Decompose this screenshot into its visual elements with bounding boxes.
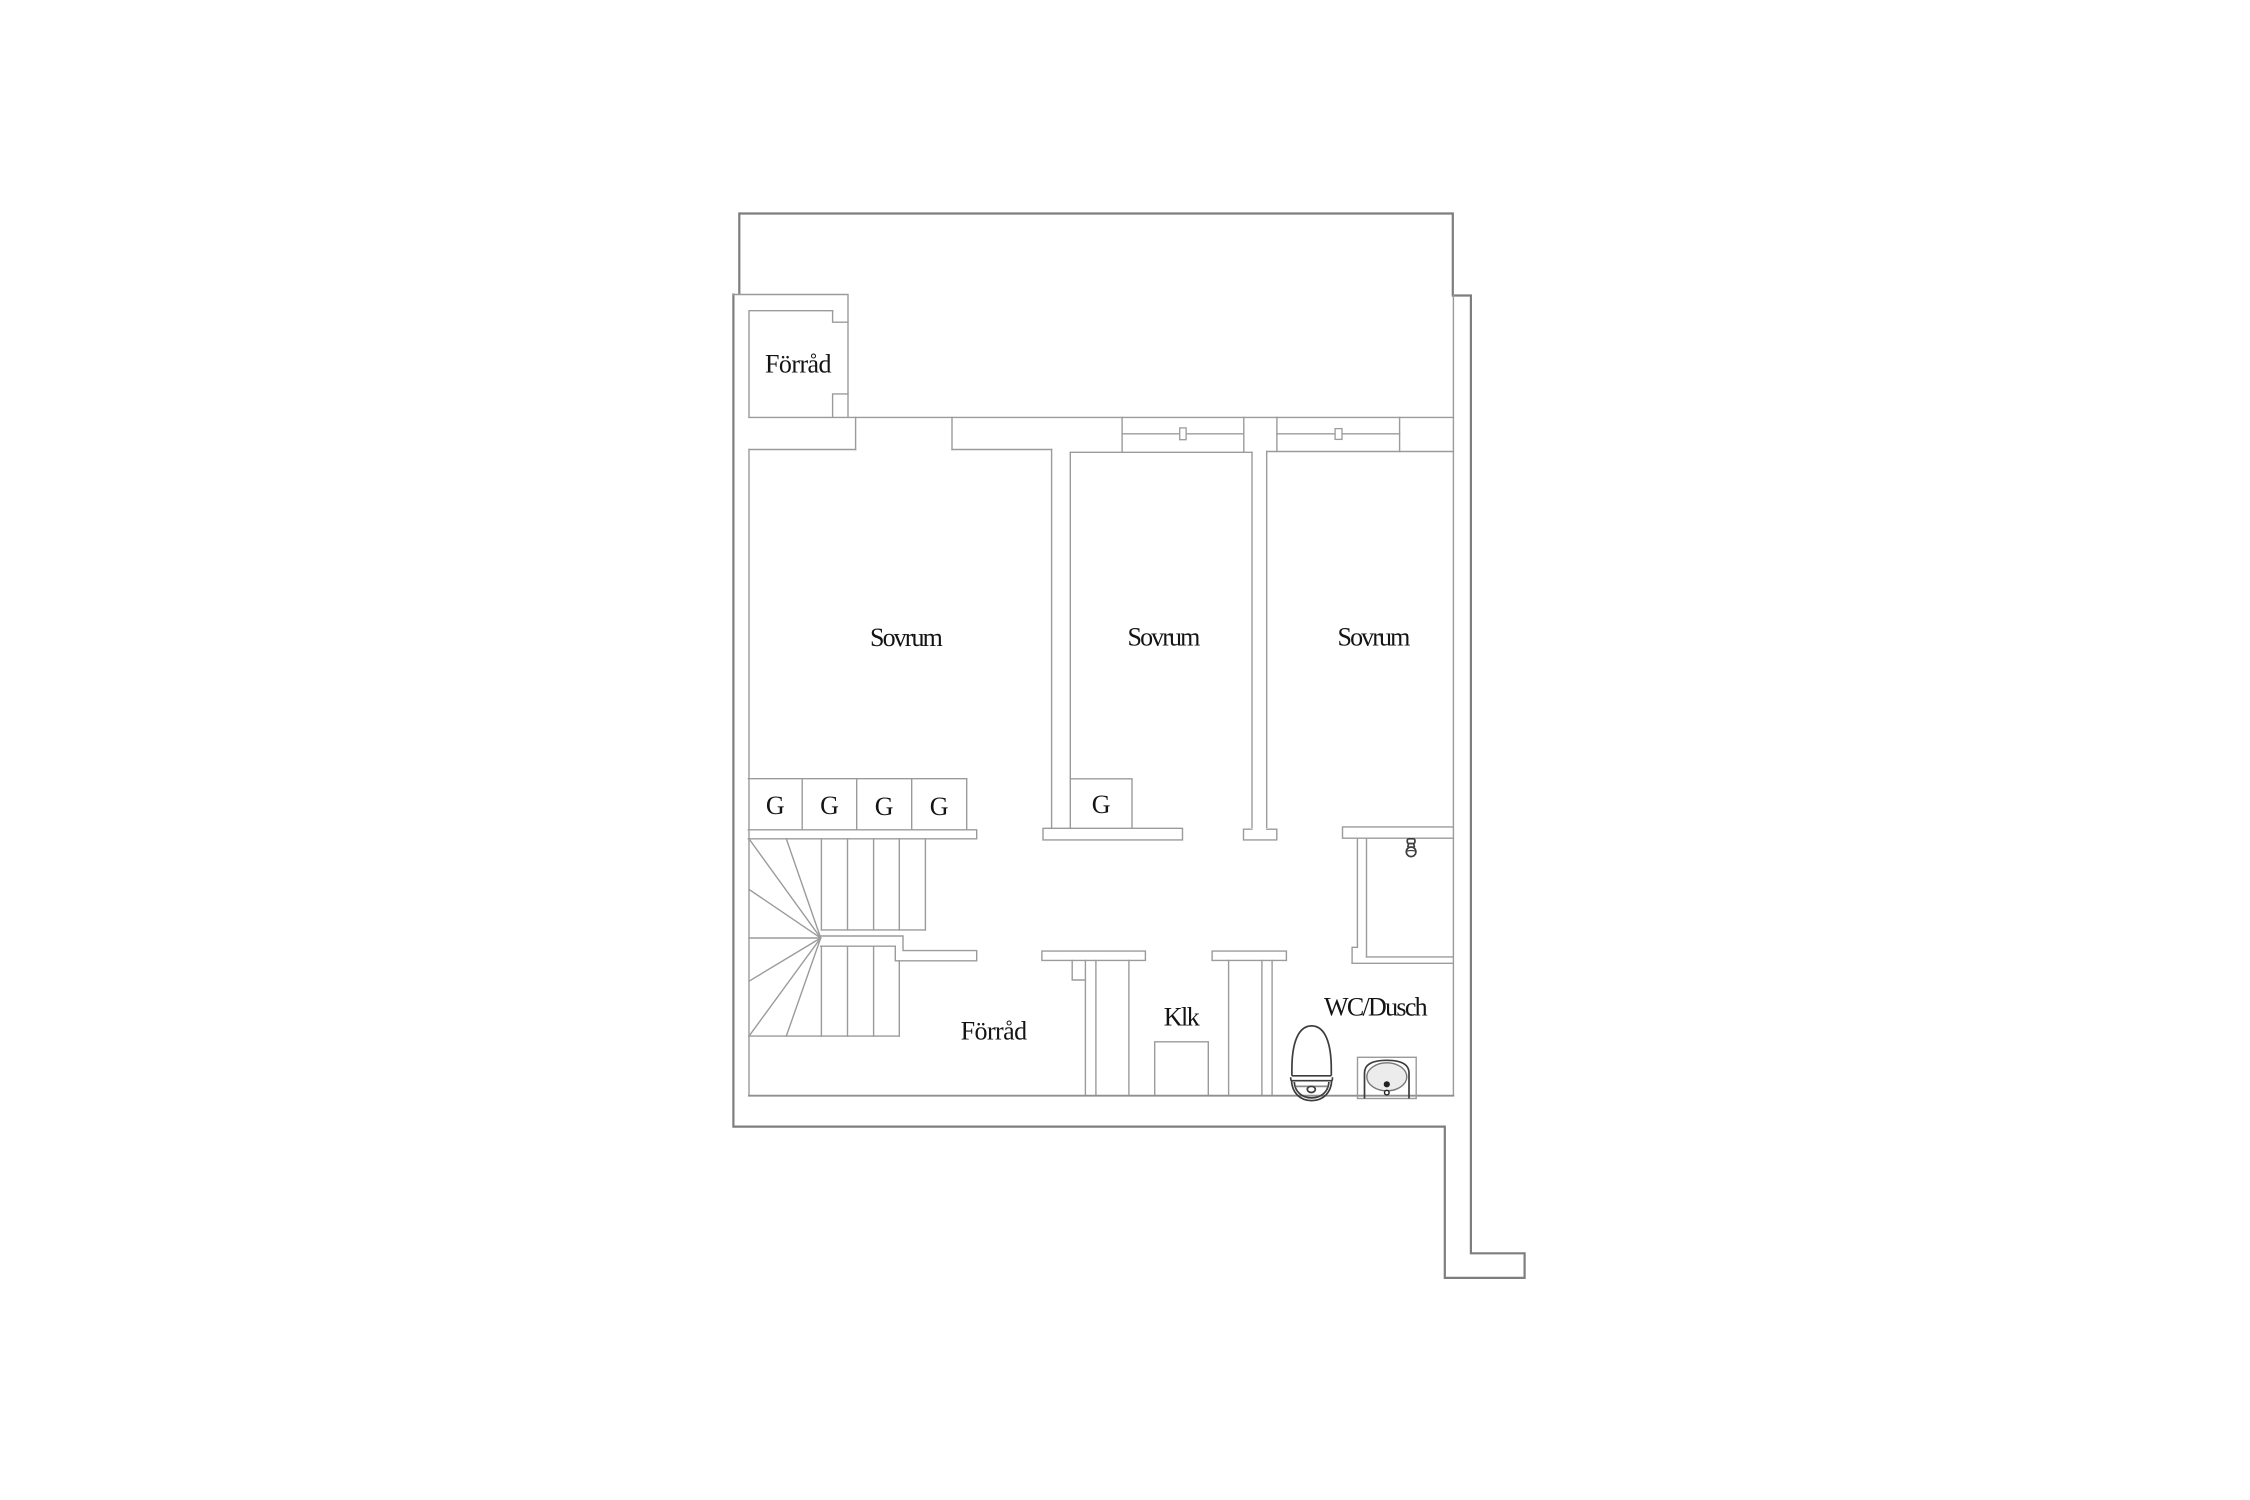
svg-text:Klk: Klk xyxy=(1164,1002,1200,1031)
svg-text:Sovrum: Sovrum xyxy=(870,623,943,652)
svg-text:WC/Dusch: WC/Dusch xyxy=(1324,993,1428,1022)
svg-text:G: G xyxy=(1092,790,1111,819)
svg-text:G: G xyxy=(766,791,785,820)
svg-text:G: G xyxy=(875,792,894,821)
svg-text:Sovrum: Sovrum xyxy=(1128,623,1201,652)
svg-text:Förråd: Förråd xyxy=(765,350,832,379)
svg-text:G: G xyxy=(820,791,839,820)
svg-text:Sovrum: Sovrum xyxy=(1338,623,1411,652)
svg-text:G: G xyxy=(930,792,949,821)
svg-text:Förråd: Förråd xyxy=(961,1017,1028,1046)
